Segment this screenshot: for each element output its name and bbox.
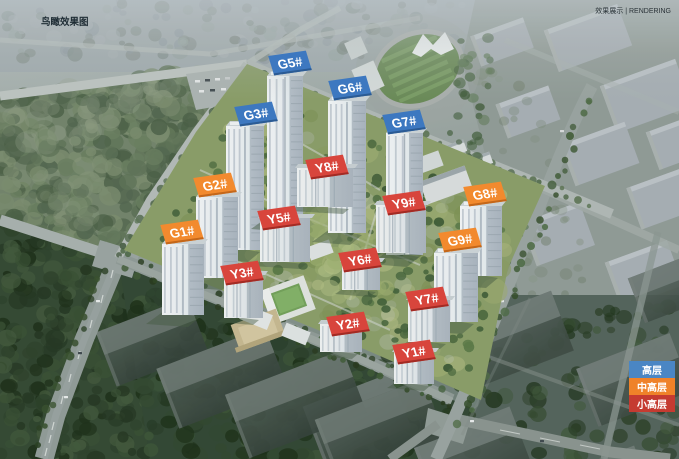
svg-text:高层: 高层 [642,364,662,377]
svg-text:鸟瞰效果图: 鸟瞰效果图 [41,16,89,28]
svg-text:效果展示 | RENDERING: 效果展示 | RENDERING [595,6,671,15]
svg-text:小高层: 小高层 [636,398,667,411]
svg-text:中高层: 中高层 [637,381,667,394]
